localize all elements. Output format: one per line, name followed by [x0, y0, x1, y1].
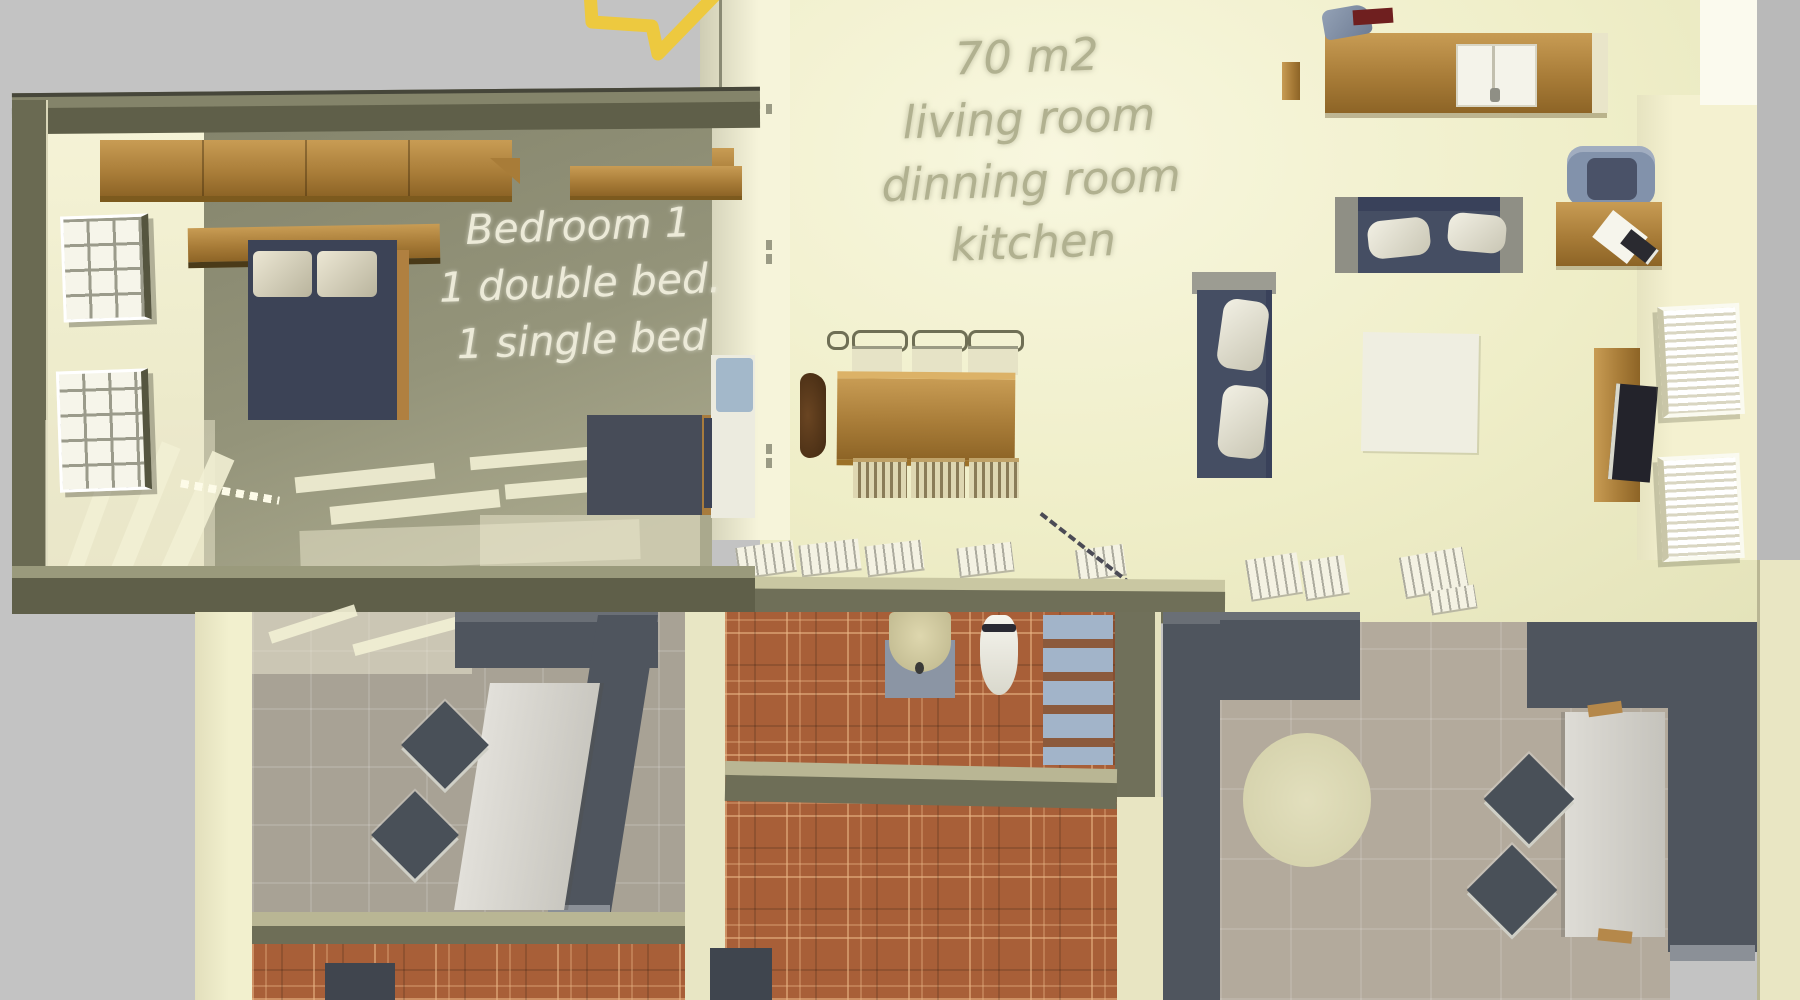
dining-chair-seat: [968, 346, 1018, 375]
living-topright-highlight: [1700, 0, 1757, 105]
bed-pillow: [253, 251, 312, 297]
terrace-left-lower-tiles: [252, 944, 720, 1000]
serving-tray-icon: [1353, 8, 1394, 26]
sofa-pillow: [1446, 212, 1507, 255]
hinge-mark: [766, 240, 772, 250]
armchair-seat: [1587, 158, 1637, 200]
hinge-mark: [766, 104, 772, 114]
living-area-label: 70 m2 living room dinning room kitchen: [816, 19, 1244, 282]
right-edge-cream: [1757, 560, 1800, 1000]
terrace-right-left-leg: [1163, 620, 1220, 1000]
round-rug: [1243, 733, 1371, 867]
wood-chair: [800, 373, 826, 458]
white-rug: [1361, 332, 1479, 453]
dining-table: [837, 371, 1016, 467]
desk: [587, 415, 704, 515]
toilet-hinge: [982, 624, 1016, 632]
towel-shelf: [1043, 615, 1113, 765]
bedroom-window: [60, 213, 152, 322]
bed-pillow: [317, 251, 377, 297]
faucet-icon: [1490, 88, 1500, 102]
bathroom-right-wall: [1115, 612, 1161, 797]
terrace-right-leg-cap: [1670, 945, 1755, 961]
sofa-horizontal-arm: [1335, 197, 1359, 273]
sofa-cushion: [1216, 384, 1269, 460]
dining-chair-slatted: [853, 458, 907, 498]
tv-screen: [1608, 383, 1658, 482]
hinge-mark: [766, 444, 772, 454]
bedroom-west-wall: [12, 100, 48, 614]
bedroom-window: [56, 368, 152, 492]
terrace-right-right-leg: [1668, 622, 1757, 952]
terrace-left-wall: [195, 612, 254, 1000]
wall-window: [1657, 453, 1744, 562]
dining-chair-hoop-small: [827, 331, 849, 350]
bed-side-rail: [397, 250, 409, 420]
radiator: [1245, 552, 1303, 602]
wall-window: [1657, 303, 1745, 418]
dining-chair-seat: [912, 346, 962, 375]
dining-chair-slatted: [969, 458, 1019, 498]
hallway-right-wall: [1117, 797, 1163, 1000]
radiator: [1300, 555, 1350, 601]
terrace-left-south-wall-dark: [252, 926, 720, 946]
doormat: [710, 948, 772, 1000]
dining-chair-slatted: [911, 458, 965, 498]
terrace-table: [1565, 712, 1665, 937]
bedroom-label: Bedroom 1 1 double bed. 1 single bed: [422, 193, 738, 375]
basin-drain-icon: [915, 662, 924, 674]
single-bed-pillow: [716, 358, 753, 412]
bathroom-left-wall: [685, 612, 727, 1000]
bedroom-south-wall: [12, 578, 755, 614]
arrow-marker-icon: [540, 0, 760, 70]
doormat: [325, 963, 395, 1000]
terrace-right-partition: [1220, 620, 1360, 700]
hinge-mark: [766, 458, 772, 468]
kitchen-counter-endcap: [1592, 33, 1608, 113]
hinge-mark: [766, 254, 772, 264]
right-edge-gray: [1757, 0, 1800, 560]
single-bed-frame: [704, 418, 712, 508]
sofa-pillow: [1366, 216, 1432, 260]
floorplan-scene: 70 m2 living room dinning room kitchen: [0, 0, 1800, 1000]
bedroom-label-line: 1 single bed: [426, 307, 738, 375]
bar-stool: [1282, 62, 1300, 100]
wardrobe: [100, 140, 512, 202]
